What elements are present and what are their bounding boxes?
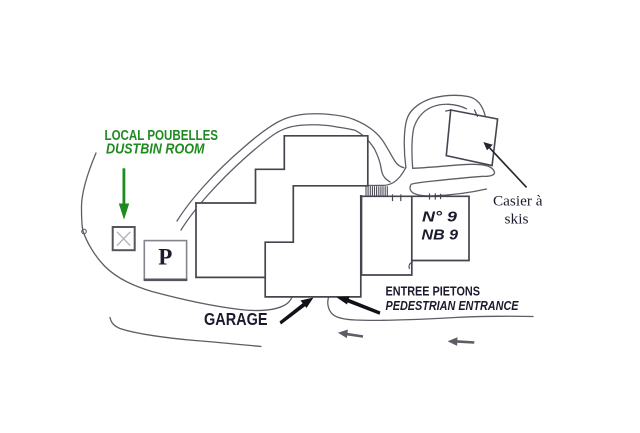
svg-text:ENTREE PIETONS: ENTREE PIETONS xyxy=(386,284,481,299)
svg-text:GARAGE: GARAGE xyxy=(204,309,268,329)
svg-text:DUSTBIN ROOM: DUSTBIN ROOM xyxy=(106,142,205,158)
svg-text:PEDESTRIAN ENTRANCE: PEDESTRIAN ENTRANCE xyxy=(386,298,519,313)
svg-text:Casier à: Casier à xyxy=(493,193,543,209)
svg-text:P: P xyxy=(158,245,172,270)
svg-text:skis: skis xyxy=(505,212,529,228)
svg-text:N° 9: N° 9 xyxy=(422,208,458,225)
svg-text:NB 9: NB 9 xyxy=(422,226,459,243)
